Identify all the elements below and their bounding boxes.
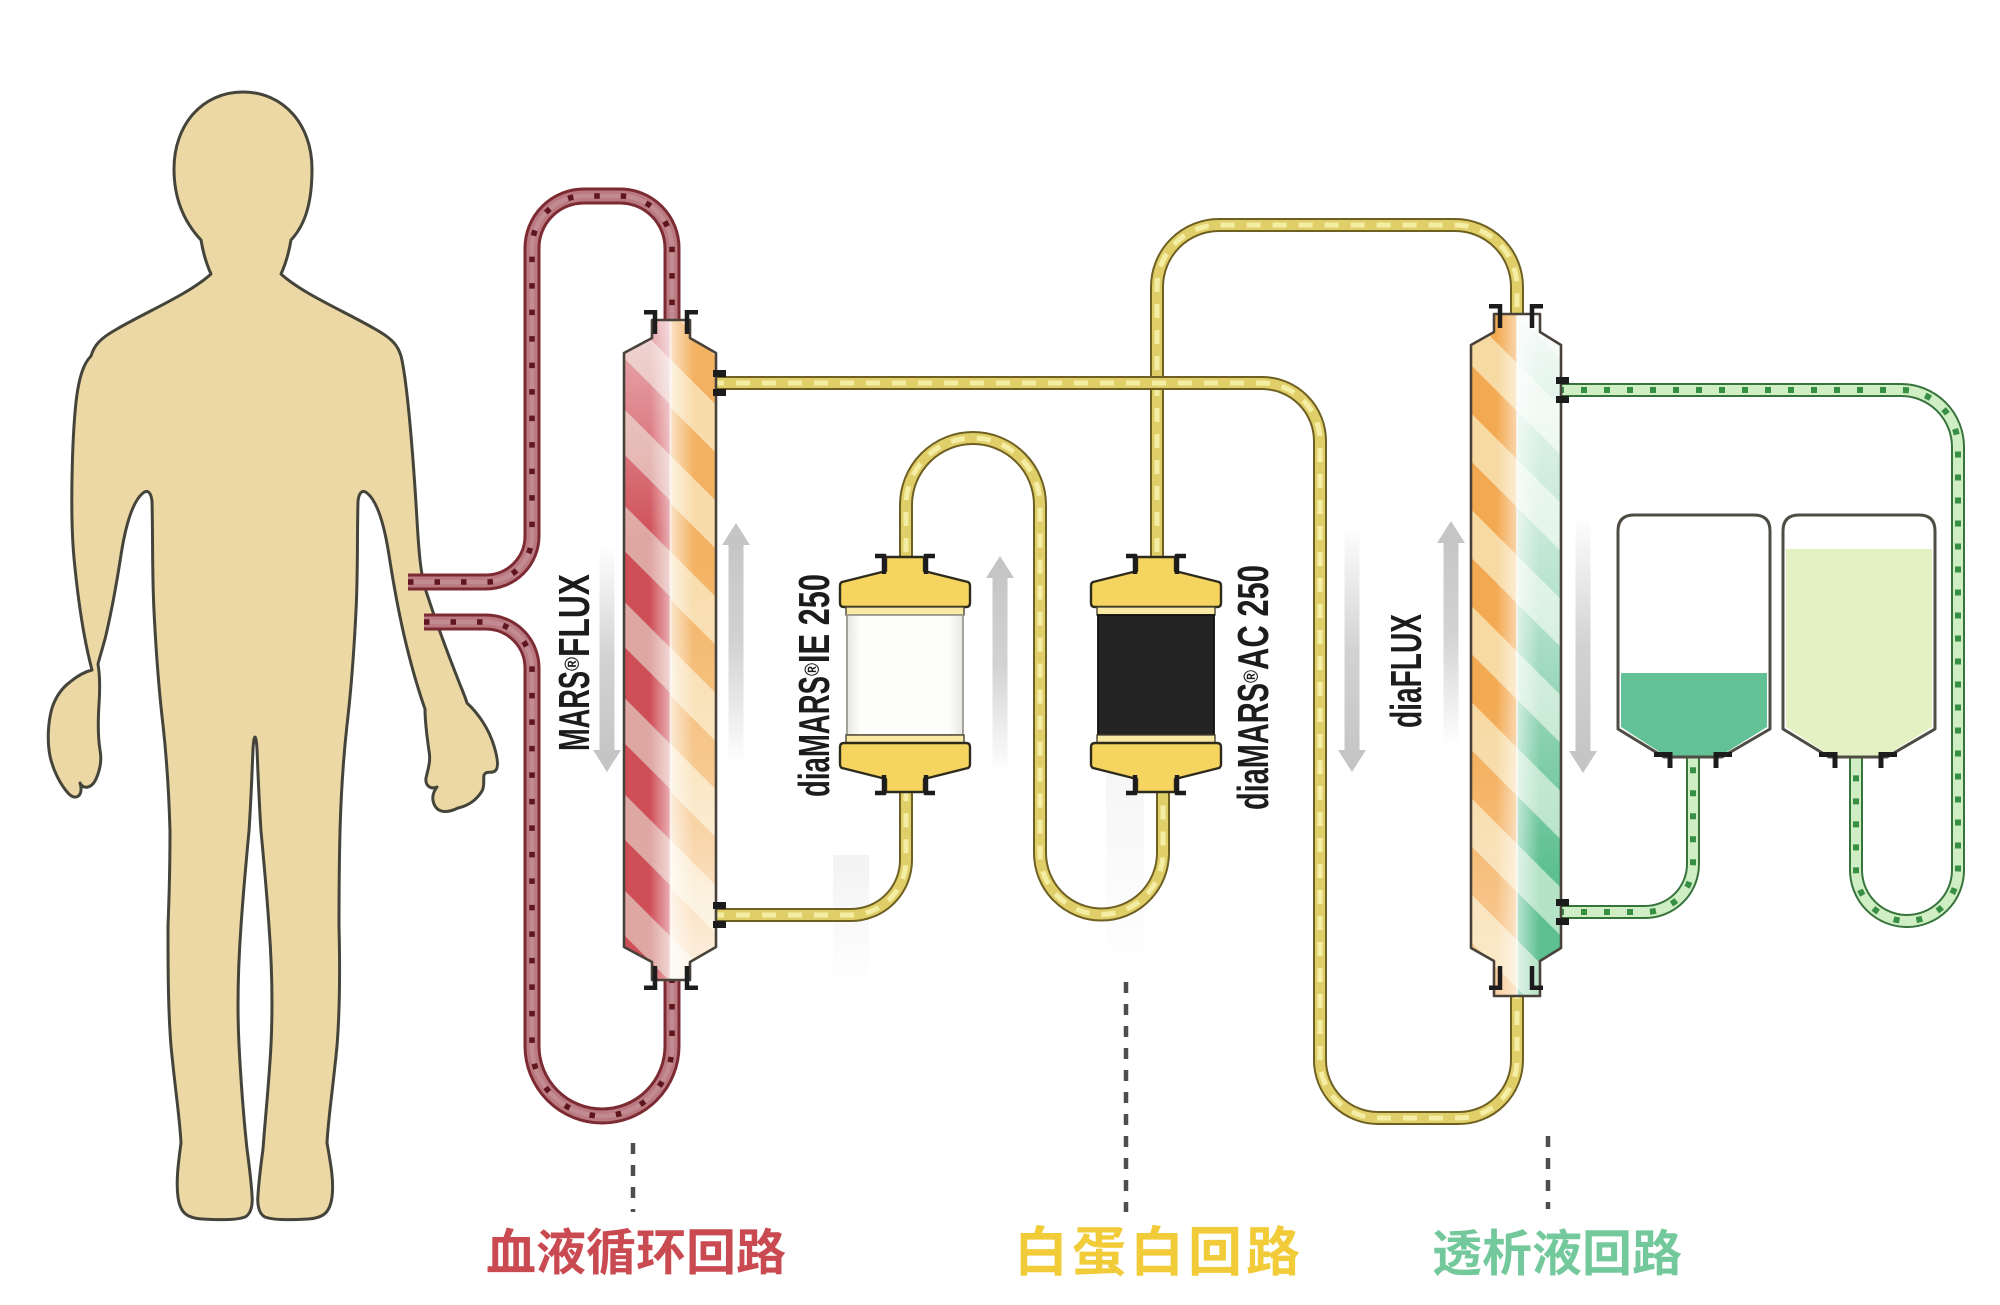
svg-text:®: ® — [1241, 670, 1263, 683]
svg-text:®: ® — [562, 657, 584, 671]
svg-text:AC 250: AC 250 — [1229, 565, 1278, 670]
svg-text:diaFLUX: diaFLUX — [1382, 614, 1431, 728]
svg-text:MARS: MARS — [550, 671, 599, 751]
svg-text:IE 250: IE 250 — [790, 574, 839, 663]
svg-text:®: ® — [802, 663, 824, 676]
svg-text:diaMARS: diaMARS — [790, 676, 839, 797]
svg-text:diaMARS: diaMARS — [1229, 683, 1278, 810]
svg-text:FLUX: FLUX — [550, 574, 599, 657]
